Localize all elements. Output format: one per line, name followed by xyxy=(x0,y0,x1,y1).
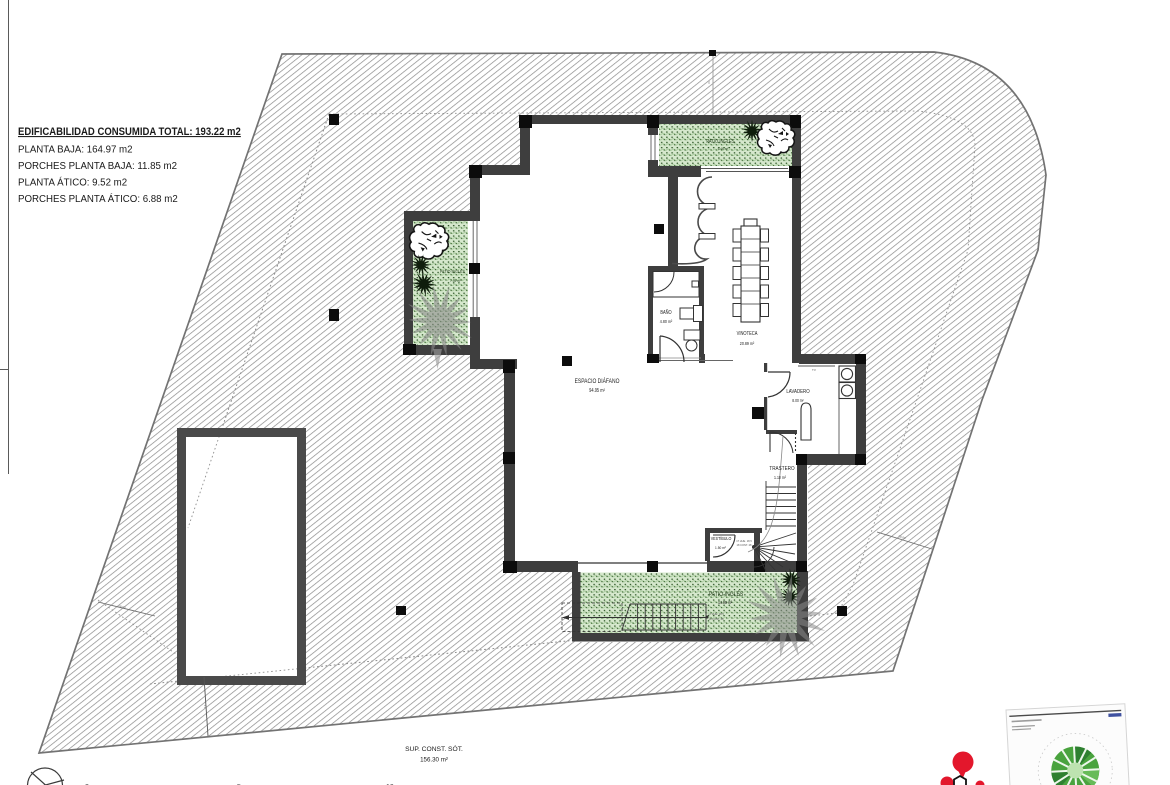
svg-text:SUP. CONST. SÓT.: SUP. CONST. SÓT. xyxy=(405,744,463,753)
svg-text:PATIO INGLÉS: PATIO INGLÉS xyxy=(709,590,744,598)
svg-text:PLANTA BAJA: 164.97 m2: PLANTA BAJA: 164.97 m2 xyxy=(18,145,133,156)
svg-text:BAÑO: BAÑO xyxy=(660,308,672,315)
svg-text:PORCHES PLANTA ÁTICO: 6.88 m2: PORCHES PLANTA ÁTICO: 6.88 m2 xyxy=(18,194,178,205)
svg-text:EDIFICABILIDAD CONSUMIDA TOTAL: EDIFICABILIDAD CONSUMIDA TOTAL: 193.22 m… xyxy=(18,127,241,139)
svg-text:18 CONT. 28: 18 CONT. 28 xyxy=(709,617,725,621)
svg-text:20.89 m²: 20.89 m² xyxy=(740,341,755,347)
svg-text:1.10 m²: 1.10 m² xyxy=(774,475,786,481)
svg-text:5.46 m²: 5.46 m² xyxy=(718,147,730,151)
svg-text:156.30 m²: 156.30 m² xyxy=(420,757,448,764)
svg-text:94.95 m²: 94.95 m² xyxy=(589,388,605,394)
svg-text:ESPACIO DIÁFANO: ESPACIO DIÁFANO xyxy=(575,377,620,385)
svg-text:TRASTERO: TRASTERO xyxy=(769,466,794,473)
svg-text:PLANTA ÁTICO: 9.52 m2: PLANTA ÁTICO: 9.52 m2 xyxy=(18,178,127,189)
svg-text:PORCHES PLANTA BAJA: 11.85 m2: PORCHES PLANTA BAJA: 11.85 m2 xyxy=(18,161,177,172)
svg-text:4.80 m²: 4.80 m² xyxy=(660,319,673,325)
svg-text:VESTÍBULO: VESTÍBULO xyxy=(711,536,732,542)
svg-text:LAVADERO: LAVADERO xyxy=(786,389,809,396)
svg-text:12: 12 xyxy=(203,704,207,708)
svg-text:8.00 m²: 8.00 m² xyxy=(792,399,804,403)
svg-text:17 HUE. 18,5: 17 HUE. 18,5 xyxy=(708,612,724,616)
svg-text:7.95 m²: 7.95 m² xyxy=(450,279,462,283)
svg-text:1.50 m²: 1.50 m² xyxy=(715,546,727,550)
svg-text:17 HUE. 18,5: 17 HUE. 18,5 xyxy=(736,539,752,543)
svg-text:TV: TV xyxy=(812,368,816,372)
svg-text:18 CONT. 28: 18 CONT. 28 xyxy=(737,543,753,547)
svg-text:14.98 m²: 14.98 m² xyxy=(718,600,733,606)
svg-text:PATIO INGLÉS: PATIO INGLÉS xyxy=(440,269,465,275)
svg-text:PATIO INGLÉS: PATIO INGLÉS xyxy=(706,137,734,144)
svg-text:VINOTECA: VINOTECA xyxy=(737,331,759,337)
